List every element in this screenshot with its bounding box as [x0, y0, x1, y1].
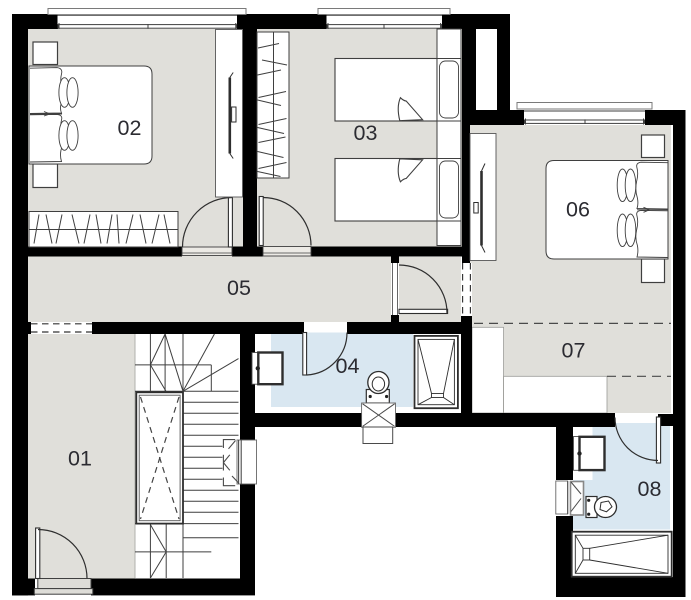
svg-text:01: 01: [68, 447, 92, 471]
svg-text:08: 08: [638, 477, 662, 501]
svg-text:02: 02: [118, 116, 142, 140]
svg-text:07: 07: [562, 339, 586, 363]
svg-text:04: 04: [336, 354, 360, 378]
svg-text:06: 06: [566, 197, 590, 221]
svg-text:03: 03: [354, 121, 378, 145]
svg-text:05: 05: [227, 276, 251, 300]
